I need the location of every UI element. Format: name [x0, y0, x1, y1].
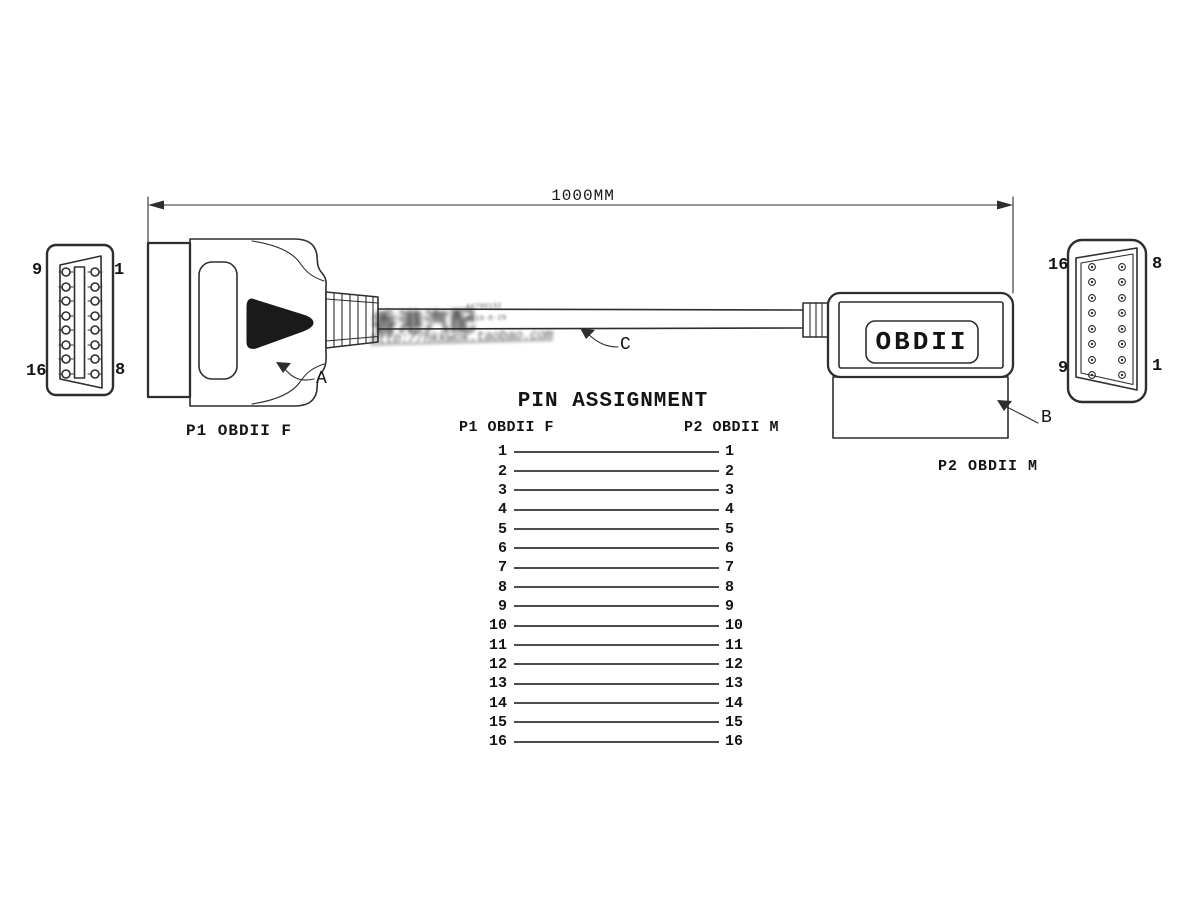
pin-number-p1: 2 [451, 464, 514, 479]
cable-diagram: 1000MM 9 1 16 8 16 8 9 1 P1 OBDII F P2 O… [0, 0, 1200, 900]
pin-row: 11 11 [451, 635, 753, 654]
pin-number-p2: 16 [719, 734, 753, 749]
pin-wire-line [514, 547, 719, 549]
dimension-arrow-right-icon [997, 201, 1013, 210]
male-pins [1089, 264, 1126, 379]
pin-number-p1: 12 [451, 657, 514, 672]
p1-face-pin9-label: 9 [32, 262, 42, 279]
obdii-plate-text: OBDII [866, 321, 978, 363]
pin-row: 14 14 [451, 693, 753, 712]
pin-number-p1: 7 [451, 560, 514, 575]
pin-wire-line [514, 683, 719, 685]
callout-b-label: B [1041, 409, 1052, 427]
pin-number-p2: 5 [719, 522, 753, 537]
p2-face-pin8-label: 8 [1152, 256, 1162, 273]
dimension-arrow-left-icon [148, 201, 164, 210]
pin-number-p1: 16 [451, 734, 514, 749]
pin-number-p2: 4 [719, 502, 753, 517]
pin-row: 9 9 [451, 597, 753, 616]
pin-wire-line [514, 451, 719, 453]
p1-face-view [47, 245, 113, 395]
pin-number-p2: 8 [719, 580, 753, 595]
pin-number-p2: 12 [719, 657, 753, 672]
p1-face-pin8-label: 8 [115, 362, 125, 379]
p1-connector-drawing [148, 239, 378, 406]
cable [378, 309, 803, 329]
pin-number-p1: 11 [451, 638, 514, 653]
pin-row: 1 1 [451, 442, 753, 461]
pin-number-p1: 8 [451, 580, 514, 595]
pin-assignment-rows: 1 1 2 2 3 3 4 4 5 [451, 442, 753, 752]
pin-number-p1: 3 [451, 483, 514, 498]
strain-relief [326, 292, 378, 348]
p2-connector-drawing [803, 293, 1013, 438]
pin-row: 7 7 [451, 558, 753, 577]
pin-assignment-right-header: P2 OBDII M [684, 420, 779, 435]
p2-face-view [1068, 240, 1146, 402]
pin-number-p1: 5 [451, 522, 514, 537]
pin-number-p1: 1 [451, 444, 514, 459]
male-plug-body [833, 377, 1008, 438]
pin-row: 13 13 [451, 674, 753, 693]
pin-number-p2: 7 [719, 560, 753, 575]
pin-number-p2: 9 [719, 599, 753, 614]
pin-wire-line [514, 470, 719, 472]
pin-wire-line [514, 567, 719, 569]
p2-connector-label: P2 OBDII M [938, 459, 1038, 474]
p2-face-pin9-label: 9 [1058, 360, 1068, 377]
pin-row: 5 5 [451, 519, 753, 538]
pin-row: 8 8 [451, 577, 753, 596]
p2-face-pin1-label: 1 [1152, 358, 1162, 375]
callout-a-label: A [316, 370, 327, 388]
pin-number-p1: 6 [451, 541, 514, 556]
cable-boot [803, 303, 828, 337]
pin-number-p1: 9 [451, 599, 514, 614]
pin-row: 4 4 [451, 500, 753, 519]
p1-face-pin1-label: 1 [114, 262, 124, 279]
pin-row: 2 2 [451, 461, 753, 480]
pin-assignment-left-header: P1 OBDII F [459, 420, 554, 435]
pin-row: 15 15 [451, 713, 753, 732]
pin-number-p2: 15 [719, 715, 753, 730]
pin-number-p2: 11 [719, 638, 753, 653]
pin-wire-line [514, 663, 719, 665]
p2-face-pin16-label: 16 [1048, 257, 1068, 274]
dimension-label: 1000MM [551, 188, 615, 204]
pin-wire-line [514, 605, 719, 607]
pin-wire-line [514, 586, 719, 588]
p1-face-pin16-label: 16 [26, 363, 46, 380]
p1-connector-label: P1 OBDII F [186, 423, 292, 439]
pin-wire-line [514, 702, 719, 704]
pin-row: 16 16 [451, 732, 753, 751]
pin-number-p2: 2 [719, 464, 753, 479]
pin-wire-line [514, 644, 719, 646]
pin-row: 12 12 [451, 655, 753, 674]
pin-wire-line [514, 721, 719, 723]
pin-wire-line [514, 625, 719, 627]
pin-wire-line [514, 489, 719, 491]
pin-number-p2: 3 [719, 483, 753, 498]
pin-number-p2: 1 [719, 444, 753, 459]
pin-number-p1: 4 [451, 502, 514, 517]
pin-number-p1: 14 [451, 696, 514, 711]
pin-wire-line [514, 509, 719, 511]
pin-wire-line [514, 741, 719, 743]
pin-number-p1: 15 [451, 715, 514, 730]
pin-number-p1: 10 [451, 618, 514, 633]
pin-number-p2: 14 [719, 696, 753, 711]
pin-number-p1: 13 [451, 676, 514, 691]
pin-wire-line [514, 528, 719, 530]
pin-number-p2: 13 [719, 676, 753, 691]
pin-row: 10 10 [451, 616, 753, 635]
pin-number-p2: 6 [719, 541, 753, 556]
pin-row: 3 3 [451, 481, 753, 500]
pin-assignment-title: PIN ASSIGNMENT [518, 391, 708, 412]
callout-c-label: C [620, 336, 631, 354]
pin-row: 6 6 [451, 539, 753, 558]
pin-number-p2: 10 [719, 618, 753, 633]
